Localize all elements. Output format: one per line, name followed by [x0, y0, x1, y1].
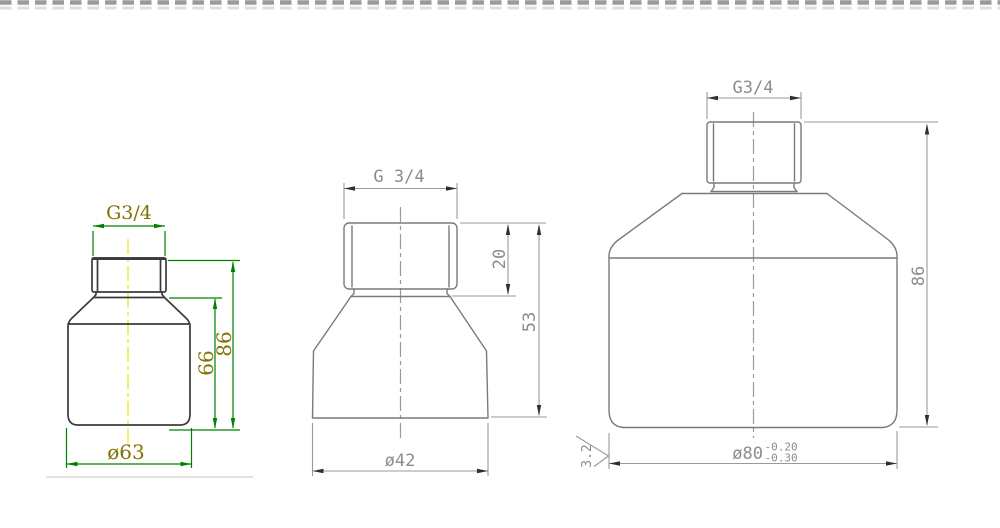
roughness-check-leg	[594, 456, 609, 467]
surface-roughness-value: 3.2	[580, 444, 595, 467]
thread-section	[92, 258, 166, 292]
technical-drawing-canvas: G3/4 66 86 ø63	[0, 0, 1000, 528]
surface-roughness-symbol: 3.2	[576, 436, 609, 468]
shoulder-right	[450, 297, 488, 419]
dim-diameter: ø63	[67, 428, 192, 468]
left-total-height-label: 86	[212, 331, 236, 356]
arrow-right	[154, 224, 165, 228]
view-right-o80: G3/4 86 ø80 -0.20 -0.30 3.2	[576, 78, 938, 469]
shoulder-left	[609, 194, 682, 428]
right-diameter-label: ø80	[732, 444, 763, 464]
middle-thread-label: G 3/4	[373, 167, 424, 187]
left-diameter-label: ø63	[107, 440, 145, 464]
right-thread-label: G3/4	[733, 78, 774, 98]
shoulder-right	[165, 298, 191, 328]
shoulder-left	[313, 297, 352, 419]
body	[68, 327, 190, 425]
right-tolerance-lower: -0.30	[765, 452, 798, 465]
right-total-height-label: 86	[909, 266, 929, 286]
dim-body-height: 66	[169, 298, 222, 429]
shoulder-right	[827, 194, 897, 428]
top-dashed-border	[0, 3, 1000, 9]
left-thread-label: G3/4	[106, 202, 152, 224]
middle-diameter-label: ø42	[385, 451, 416, 471]
dim-thread: G3/4	[93, 202, 165, 256]
dim-total-height: 86	[168, 261, 240, 431]
shoulder-left	[68, 298, 94, 328]
arrow-left	[93, 224, 104, 228]
middle-total-height-label: 53	[520, 312, 540, 332]
drawing-sheet: G3/4 66 86 ø63	[0, 0, 1000, 528]
view-left-o63: G3/4 66 86 ø63	[46, 202, 253, 477]
dim-thread-height: 20	[452, 223, 546, 296]
view-middle-o42: G 3/4 20 53 ø42	[313, 167, 548, 476]
middle-thread-height-label: 20	[490, 249, 510, 269]
part-outline	[68, 258, 190, 425]
dim-total-height: 86	[804, 122, 938, 427]
